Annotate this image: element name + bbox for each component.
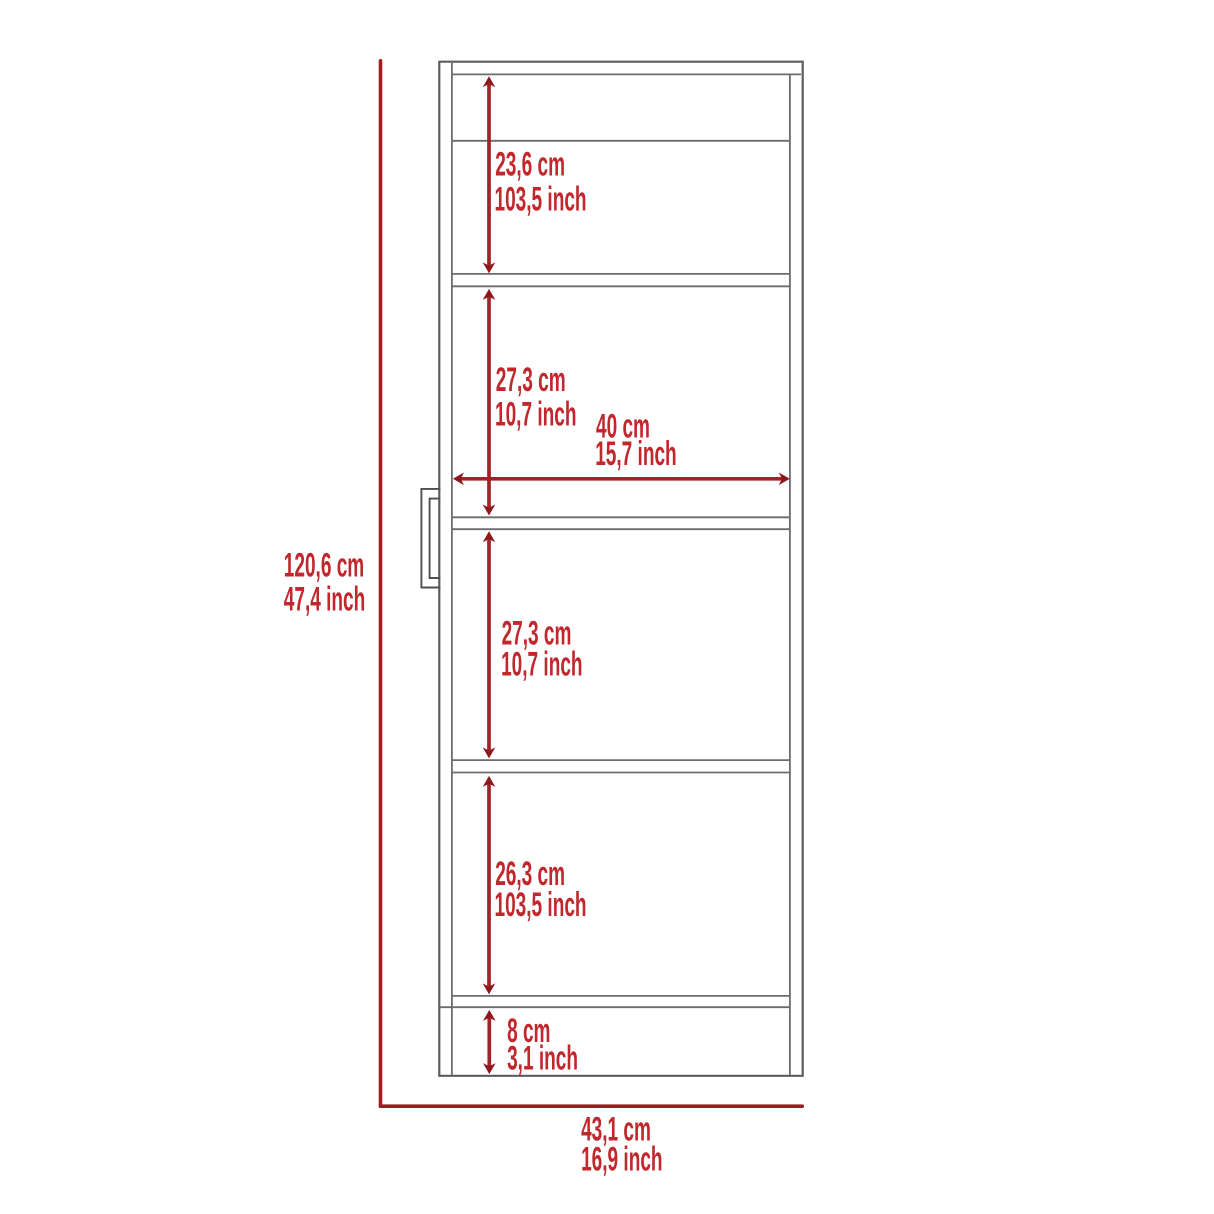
svg-text:47,4 inch: 47,4 inch <box>284 580 365 618</box>
svg-text:103,5 inch: 103,5 inch <box>495 885 587 923</box>
svg-text:10,7 inch: 10,7 inch <box>495 395 576 433</box>
svg-text:27,3 cm: 27,3 cm <box>496 360 566 398</box>
svg-text:120,6 cm: 120,6 cm <box>284 546 364 584</box>
svg-text:15,7 inch: 15,7 inch <box>595 434 676 472</box>
svg-text:103,5 inch: 103,5 inch <box>495 179 587 217</box>
svg-text:23,6 cm: 23,6 cm <box>495 145 565 183</box>
svg-text:10,7 inch: 10,7 inch <box>501 645 582 683</box>
svg-text:3,1 inch: 3,1 inch <box>507 1039 578 1077</box>
svg-text:16,9 inch: 16,9 inch <box>581 1140 662 1178</box>
